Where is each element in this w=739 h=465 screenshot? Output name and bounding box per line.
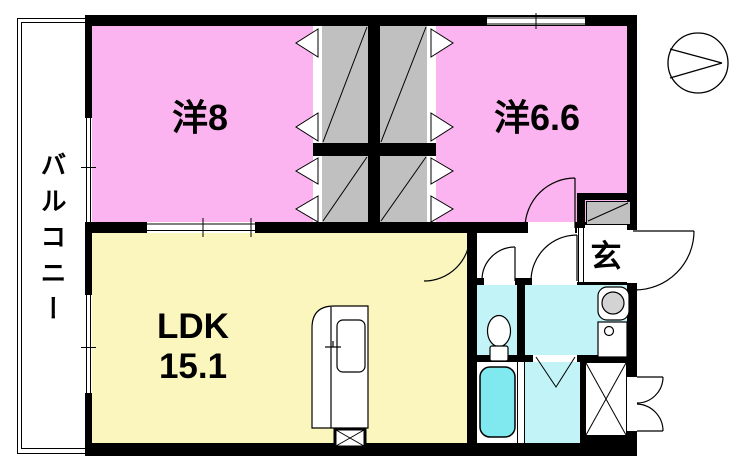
closet-cell: [380, 156, 427, 222]
ldk-label: LDK 15.1: [123, 307, 263, 387]
door-opening-washroom: [532, 278, 577, 285]
washroom: [525, 285, 627, 355]
closet-door-strip: [427, 156, 436, 222]
hallway: [477, 233, 577, 278]
window-balcony-west8: [85, 118, 92, 222]
closet-door-strip: [313, 156, 322, 222]
toilet-room: [477, 285, 517, 355]
ldk-name: LDK: [157, 307, 229, 346]
entrance-door-arc: [633, 231, 694, 290]
storage-door-opening: [627, 377, 637, 431]
closet-door-strip: [427, 26, 436, 143]
entrance-label: 玄: [583, 241, 629, 273]
window-balcony-ldk: [85, 295, 92, 393]
door-opening-west66: [528, 222, 575, 233]
shoe-cabinet: [586, 201, 631, 225]
balcony-label: バルコニー: [33, 133, 65, 348]
closet-cell: [380, 26, 427, 143]
storage-room: [586, 363, 626, 435]
closet-cell: [322, 26, 368, 143]
window-inner-wall: [147, 222, 255, 233]
closet-cell: [322, 156, 368, 222]
bath-partition: [517, 362, 525, 443]
compass-n-label: N: [708, 54, 724, 72]
window-top: [487, 17, 585, 25]
storage-double-door: [637, 377, 663, 431]
bathtub-room: [477, 362, 517, 443]
door-opening-bath-fold: [533, 355, 577, 362]
room-western-66-label: 洋6.6: [457, 100, 617, 140]
bathroom: [525, 362, 580, 443]
floor-plan: バルコニー 洋8 洋6.6 LDK 15.1 玄 N: [0, 0, 739, 465]
closet-door-strip: [313, 26, 322, 143]
wall-segment: [577, 193, 637, 200]
room-western-8-label: 洋8: [130, 100, 270, 140]
door-opening-toilet: [484, 278, 515, 285]
ldk-size: 15.1: [159, 347, 227, 386]
